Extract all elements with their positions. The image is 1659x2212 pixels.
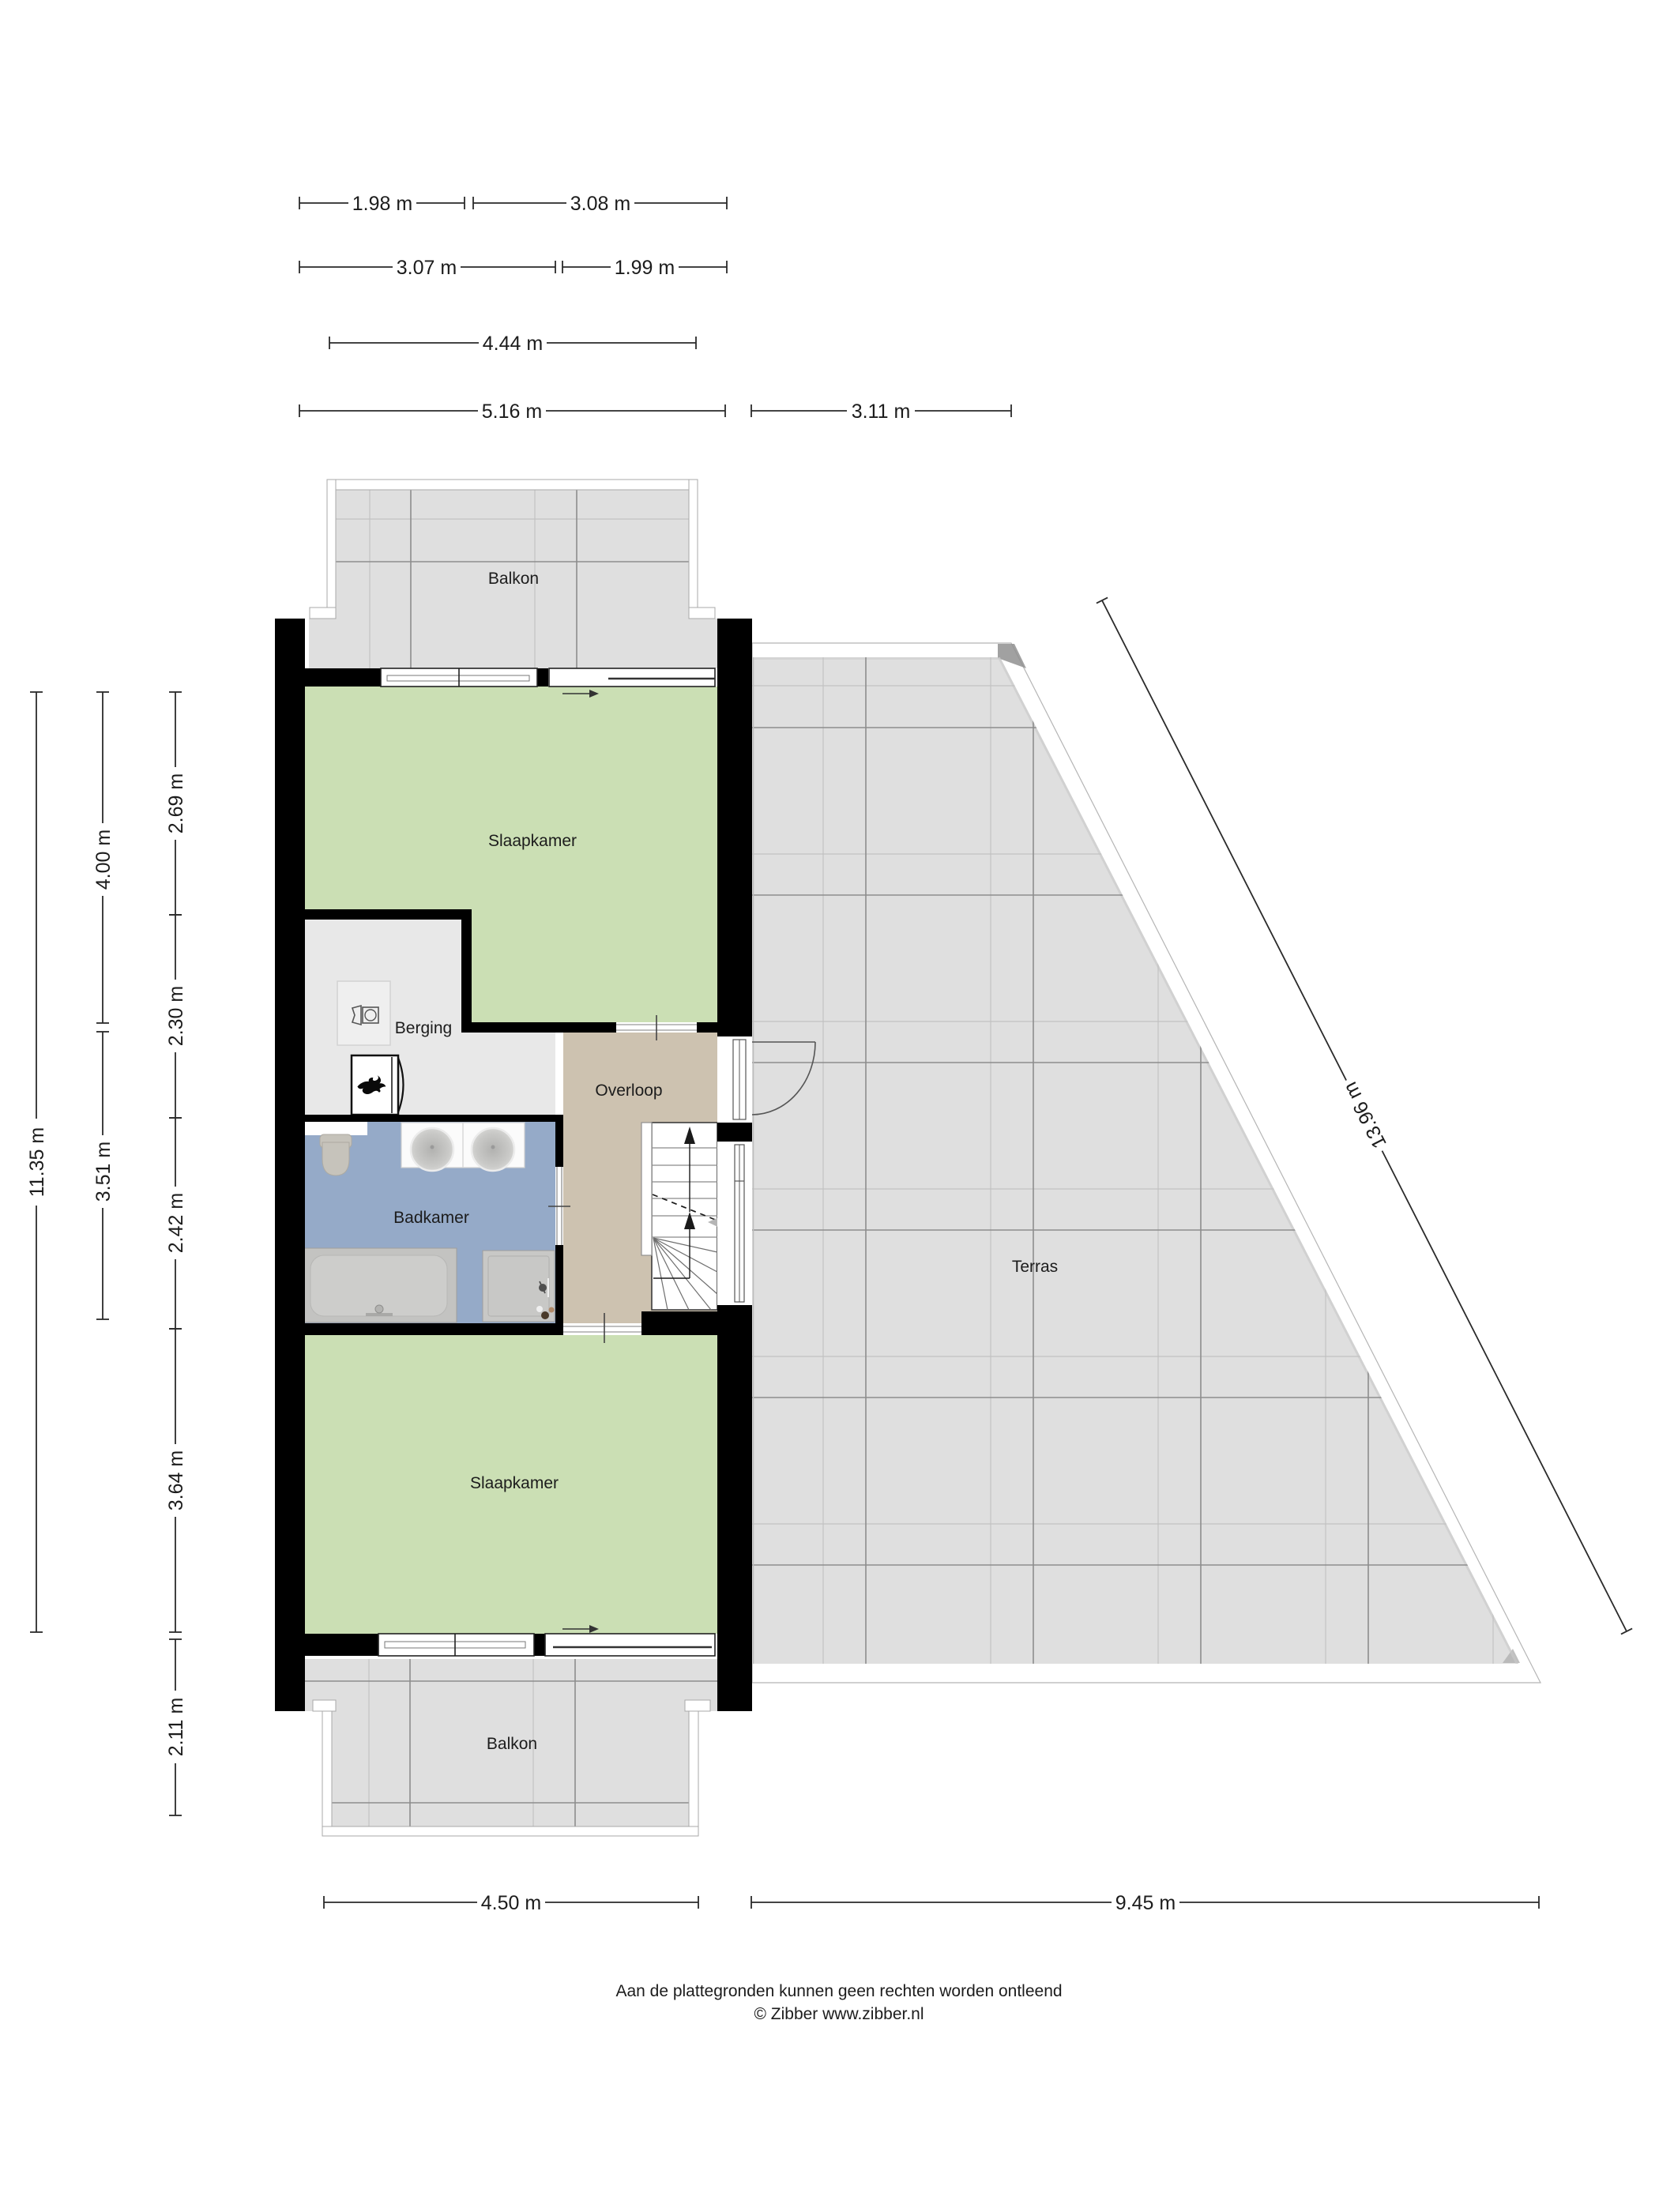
- svg-text:5.16 m: 5.16 m: [482, 401, 542, 423]
- svg-text:4.44 m: 4.44 m: [483, 333, 543, 355]
- svg-text:Balkon: Balkon: [488, 570, 539, 588]
- svg-text:11.35 m: 11.35 m: [26, 1127, 48, 1197]
- svg-text:Balkon: Balkon: [487, 1735, 537, 1753]
- svg-text:2.30 m: 2.30 m: [165, 986, 187, 1046]
- svg-text:1.99 m: 1.99 m: [615, 257, 675, 279]
- svg-text:3.07 m: 3.07 m: [397, 257, 457, 279]
- svg-text:3.64 m: 3.64 m: [165, 1450, 187, 1510]
- svg-text:Aan de plattegronden kunnen ge: Aan de plattegronden kunnen geen rechten…: [615, 1982, 1062, 2000]
- svg-text:4.00 m: 4.00 m: [92, 829, 115, 890]
- svg-text:Berging: Berging: [395, 1019, 452, 1037]
- svg-text:Overloop: Overloop: [595, 1082, 662, 1100]
- svg-text:2.42 m: 2.42 m: [165, 1193, 187, 1253]
- svg-text:Terras: Terras: [1012, 1258, 1058, 1276]
- svg-text:Slaapkamer: Slaapkamer: [470, 1474, 559, 1492]
- svg-text:© Zibber www.zibber.nl: © Zibber www.zibber.nl: [754, 2005, 924, 2023]
- svg-text:3.08 m: 3.08 m: [570, 193, 630, 215]
- svg-text:4.50 m: 4.50 m: [481, 1892, 541, 1914]
- svg-text:2.69 m: 2.69 m: [165, 773, 187, 833]
- svg-text:3.51 m: 3.51 m: [92, 1142, 115, 1202]
- svg-text:1.98 m: 1.98 m: [352, 193, 412, 215]
- svg-text:Slaapkamer: Slaapkamer: [488, 832, 577, 850]
- svg-text:3.11 m: 3.11 m: [852, 401, 911, 423]
- svg-text:9.45 m: 9.45 m: [1115, 1892, 1176, 1914]
- svg-text:Badkamer: Badkamer: [393, 1209, 469, 1227]
- svg-text:2.11 m: 2.11 m: [165, 1698, 187, 1757]
